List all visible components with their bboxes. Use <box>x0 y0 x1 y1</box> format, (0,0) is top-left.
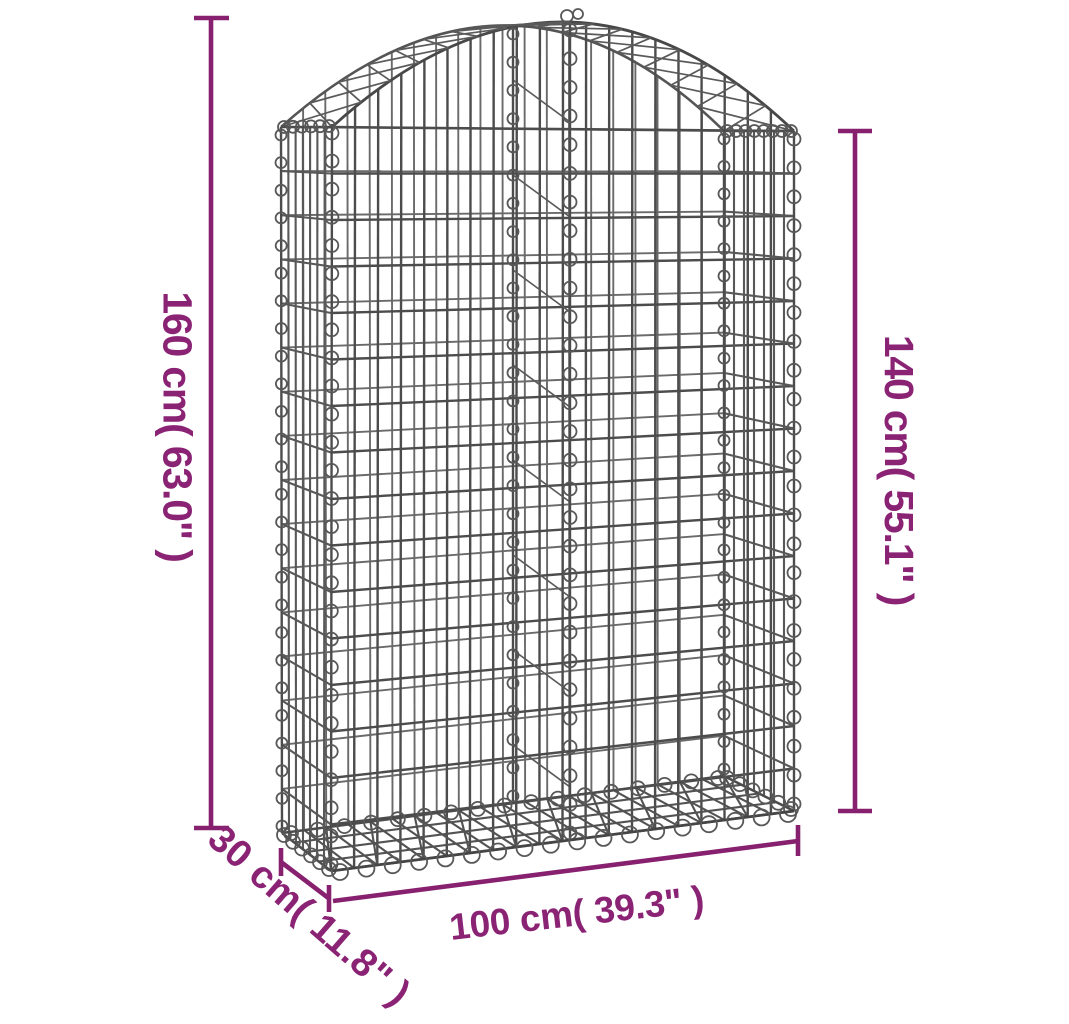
svg-text:140 cm( 55.1" ): 140 cm( 55.1" ) <box>876 335 922 605</box>
svg-text:160 cm( 63.0" ): 160 cm( 63.0" ) <box>155 291 201 561</box>
svg-text:100 cm( 39.3" ): 100 cm( 39.3" ) <box>447 878 706 948</box>
